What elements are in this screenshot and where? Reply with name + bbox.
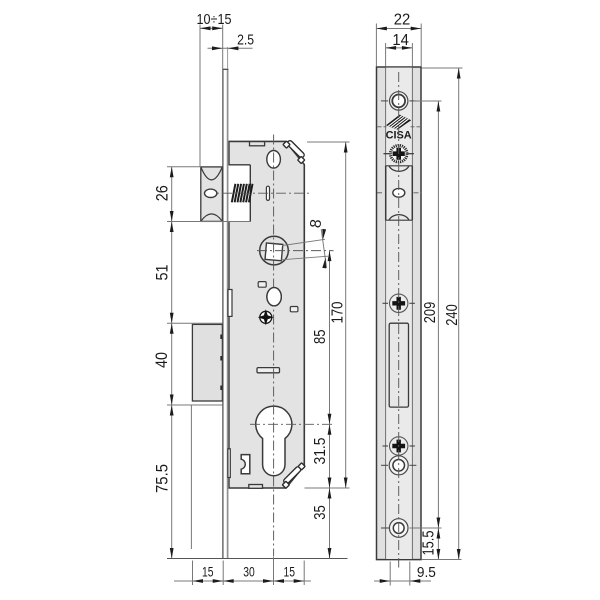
svg-text:85: 85 [312,329,329,344]
svg-text:209: 209 [422,302,439,324]
svg-text:40: 40 [152,352,171,368]
svg-text:10÷15: 10÷15 [197,12,232,28]
svg-text:51: 51 [153,265,172,281]
svg-text:2.5: 2.5 [237,33,254,49]
svg-text:14: 14 [392,32,409,49]
svg-text:15: 15 [283,563,295,579]
svg-text:22: 22 [394,11,411,28]
svg-text:170: 170 [329,301,346,323]
svg-text:75.5: 75.5 [152,464,171,493]
svg-text:35: 35 [312,505,329,520]
svg-text:30: 30 [243,563,255,579]
svg-text:240: 240 [444,304,461,326]
svg-text:31.5: 31.5 [312,438,329,465]
svg-text:15: 15 [202,563,214,579]
svg-text:26: 26 [153,185,172,201]
svg-text:9.5: 9.5 [417,565,436,581]
svg-text:15.5: 15.5 [420,531,437,556]
